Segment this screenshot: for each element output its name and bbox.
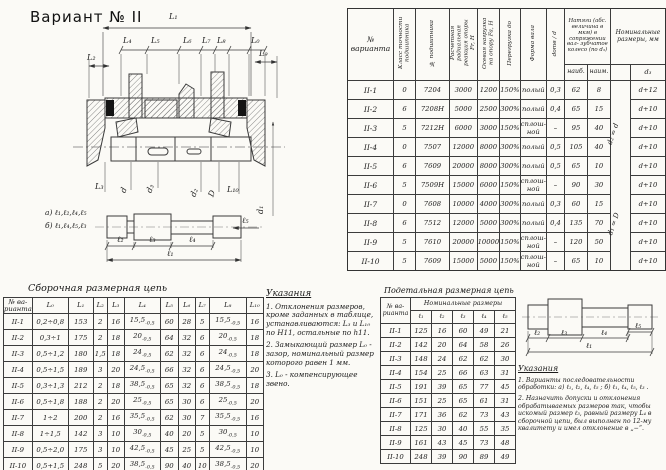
table-cell: 15000 (450, 252, 478, 270)
col-header-accuracy-class-label: Класс точности подшипника (398, 16, 411, 70)
table-cell: 7609 (416, 252, 450, 270)
table-cell: II-3 (4, 346, 33, 362)
table-cell: 300% (500, 100, 520, 119)
table-cell: 18 (107, 346, 124, 362)
table-row: II-90,5÷2,017531042,5-0,54525542,5-0,510 (4, 442, 264, 458)
table-row: II-60,5÷1,818822025-0,56530625-0,520 (4, 394, 264, 410)
table-row: II-9576102000010000150%сплош-ной–12050d+… (348, 233, 665, 252)
col-header-nominal: Номинальные размеры, мм (611, 9, 665, 65)
table-row: II-415425666331 (381, 366, 516, 380)
table-cell (611, 100, 631, 119)
table-cell: 39 (432, 380, 453, 394)
table-cell: 16 (432, 324, 453, 338)
table-cell: II-7 (348, 195, 394, 214)
det-dim-l5: ℓ₅ (635, 322, 641, 330)
table-cell: 6 (394, 157, 416, 176)
table-cell: 5 (195, 314, 209, 330)
dim-label-l2: ℓ₂ (117, 236, 124, 244)
table-cell: 62 (160, 346, 178, 362)
table-cell: сплош-ной (521, 119, 547, 138)
table-cell: 150% (500, 119, 520, 138)
table-cell: d+10 (631, 252, 665, 270)
table-cell: 5 (195, 442, 209, 458)
table-cell: 60 (565, 195, 588, 214)
table-cell: 20 (432, 338, 453, 352)
table-cell: сплош-ной (521, 252, 547, 270)
table-cell: II-6 (381, 394, 411, 408)
table-cell: II-6 (348, 176, 394, 195)
table-cell: 5000 (450, 100, 478, 119)
det-dim-l2: ℓ₂ (534, 329, 540, 337)
asm-col-L8: L₈ (209, 298, 246, 314)
table-cell: 45 (495, 380, 516, 394)
col-header-accuracy-class: Класс точности подшипника (394, 9, 416, 81)
table-cell: II-5 (4, 378, 33, 394)
table-cell: 6 (394, 100, 416, 119)
det-col-l5: ℓ₅ (495, 311, 516, 324)
table-cell: 24,5-0,5 (209, 362, 246, 378)
table-cell: 0,5 (547, 138, 565, 157)
table-cell: 60 (160, 314, 178, 330)
table-cell: 62 (160, 410, 178, 426)
table-cell: 32 (178, 378, 195, 394)
col-header-bearing-no-label: № подшипника (429, 20, 436, 66)
table-row: II-314824626230 (381, 352, 516, 366)
table-cell: II-5 (381, 380, 411, 394)
table-cell: 154 (411, 366, 432, 380)
table-cell: 62 (565, 81, 588, 100)
table-cell: полый (521, 138, 547, 157)
table-cell: 8000 (478, 138, 501, 157)
table-cell: 20000 (450, 157, 478, 176)
table-cell: 5 (394, 119, 416, 138)
table-row: II-615125656131 (381, 394, 516, 408)
table-cell: 125 (411, 324, 432, 338)
table-cell: 1÷1,5 (32, 426, 68, 442)
table-cell (611, 157, 631, 176)
dim-label-l1: ℓ₁ (167, 250, 174, 258)
table-cell: 125 (411, 422, 432, 436)
table-cell: 10000 (478, 233, 501, 252)
table-cell: 30 (588, 176, 611, 195)
col-header-d-ratio: dотв / d (547, 9, 565, 81)
table-cell: 5000 (478, 252, 501, 270)
table-cell: 175 (68, 442, 93, 458)
table-cell: 300% (500, 138, 520, 157)
det-dim-l1: ℓ₁ (586, 342, 592, 350)
table-cell: 6 (195, 330, 209, 346)
table-cell: II-9 (348, 233, 394, 252)
table-cell: 42,5-0,5 (124, 442, 160, 458)
asm-col-L3: L₃ (107, 298, 124, 314)
det-col-l2: ℓ₂ (432, 311, 453, 324)
table-cell: 15000 (450, 176, 478, 195)
table-cell: 0,3÷1,3 (32, 378, 68, 394)
table-row: II-916143457348 (381, 436, 516, 450)
table-cell: 43 (495, 408, 516, 422)
table-cell: 65 (453, 394, 474, 408)
col-header-min: наим. (588, 65, 611, 81)
table-cell: 148 (411, 352, 432, 366)
table-cell: 10 (246, 442, 263, 458)
table-cell: 25-0,5 (124, 394, 160, 410)
table-cell: 25 (178, 442, 195, 458)
table-cell: полый (521, 100, 547, 119)
assembly-chain-body: II-10,2÷0,815321615,5-0,56028515,5-0,516… (4, 314, 264, 470)
table-cell: 65 (565, 100, 588, 119)
table-cell: 31 (495, 394, 516, 408)
table-cell: полый (521, 81, 547, 100)
scanned-variant-sheet: Вариант № II (0, 0, 666, 470)
asm-col-L10: L₁₀ (246, 298, 263, 314)
table-cell: 66 (160, 362, 178, 378)
table-cell: d+10 (631, 233, 665, 252)
table-cell: 7208Н (416, 100, 450, 119)
table-cell: 62 (474, 352, 495, 366)
table-cell: 175 (68, 330, 93, 346)
asm-col-L0: L₀ (32, 298, 68, 314)
table-cell: 30 (495, 352, 516, 366)
table-cell: 73 (474, 436, 495, 450)
table-cell: 1÷2 (32, 410, 68, 426)
table-cell: 39 (432, 450, 453, 464)
table-cell: 49 (495, 450, 516, 464)
col-header-overload-label: Перегрузка до (507, 21, 514, 66)
table-cell: 15 (588, 100, 611, 119)
table-cell: 20000 (450, 233, 478, 252)
table-cell: 20-0,5 (209, 330, 246, 346)
detail-chain-table-wrap: № ва-рианта Номинальные размеры ℓ₁ ℓ₂ ℓ₃… (380, 297, 516, 464)
det-group-header: Номинальные размеры (411, 298, 516, 311)
asm-col-L2: L₂ (93, 298, 107, 314)
table-cell: 24-0,5 (209, 346, 246, 362)
table-cell: 8000 (478, 157, 501, 176)
table-row: II-50,3÷1,321221838,5-0,56532638,5-0,518 (4, 378, 264, 394)
table-cell: 6 (195, 362, 209, 378)
table-row: II-1057609150005000150%сплош-ной–6510d+1… (348, 252, 665, 270)
table-cell: 200 (68, 410, 93, 426)
table-row: II-10,2÷0,815321615,5-0,56028515,5-0,516 (4, 314, 264, 330)
table-cell: 6 (195, 378, 209, 394)
table-cell: 212 (68, 378, 93, 394)
dim-label-L10: L₁₀ (227, 186, 239, 194)
table-cell: 300% (500, 157, 520, 176)
table-cell: 32 (178, 346, 195, 362)
instruction-item: 2. Назначить допуски и отклонения обраба… (518, 395, 664, 432)
table-cell: II-10 (4, 458, 33, 470)
table-row: II-407507120008000300%полый0,510540d+10 (348, 138, 665, 157)
col-header-d3: d₃ (631, 65, 665, 81)
table-cell: 25 (432, 394, 453, 408)
table-cell: 5 (394, 233, 416, 252)
table-cell: 18 (107, 378, 124, 394)
table-cell: II-1 (4, 314, 33, 330)
table-cell: 5 (394, 176, 416, 195)
table-cell: 105 (565, 138, 588, 157)
dim-label-l5: ℓ₅ (242, 217, 249, 225)
table-cell: II-2 (348, 100, 394, 119)
table-cell: 10 (246, 426, 263, 442)
dim-label-L3: L₃ (95, 183, 104, 191)
asm-col-L7: L₇ (195, 298, 209, 314)
instruction-item: 3. L₀ - компенсирующее звено. (266, 371, 376, 388)
instruction-item: 2. Замыкающий размер L₀ - зазор, номинал… (266, 341, 376, 367)
table-cell: сплош-ной (521, 233, 547, 252)
table-cell: 58 (474, 338, 495, 352)
table-cell: 6 (195, 346, 209, 362)
assembly-chain-table-wrap: № ва-рианта L₀ L₁ L₂ L₃ L₄ L₅ L₆ L₇ L₈ L… (3, 297, 264, 470)
table-cell: II-2 (381, 338, 411, 352)
table-cell: II-2 (4, 330, 33, 346)
table-cell: сплош-ной (521, 176, 547, 195)
table-cell: d+10 (631, 138, 665, 157)
dim-label-L1: L₁ (169, 13, 178, 21)
table-cell: 248 (411, 450, 432, 464)
table-cell: 0,5+1,5 (32, 458, 68, 470)
table-cell: 43 (432, 436, 453, 450)
table-cell: 7204 (416, 81, 450, 100)
table-row: II-112516604921 (381, 324, 516, 338)
detail-chain-body: II-112516604921II-214220645826II-3148246… (381, 324, 516, 464)
table-cell: 10 (588, 157, 611, 176)
table-row: II-267208Н50002500300%полый0,46515d+10 (348, 100, 665, 119)
table-cell: 24,5-0,5 (124, 362, 160, 378)
table-cell: 3 (93, 442, 107, 458)
table-cell: 4000 (478, 195, 501, 214)
table-cell: 89 (474, 450, 495, 464)
instructions-right-title: Указания (518, 364, 664, 374)
col-header-max: наиб. (565, 65, 588, 81)
table-cell: 90 (160, 458, 178, 470)
table-cell: – (547, 233, 565, 252)
table-row: II-707608100004000300%полый0,36015d+10 (348, 195, 665, 214)
table-cell: II-10 (348, 252, 394, 270)
table-cell: 10000 (450, 195, 478, 214)
table-cell: 20-0,5 (124, 330, 160, 346)
table-cell: 40 (453, 422, 474, 436)
detail-chain-table: № ва-рианта Номинальные размеры ℓ₁ ℓ₂ ℓ₃… (380, 297, 516, 464)
table-cell: 42,5-0,5 (209, 442, 246, 458)
dim-label-d1: d₁ (257, 206, 265, 214)
table-cell: 30 (178, 394, 195, 410)
col-header-radial-reaction: Расчетная радиальная реакция опоры Fr, Н (450, 9, 478, 81)
table-cell: II-3 (381, 352, 411, 366)
table-cell: 10 (107, 442, 124, 458)
table-cell: 151 (411, 394, 432, 408)
table-cell: 150% (500, 252, 520, 270)
table-cell: 35 (495, 422, 516, 436)
sequence-note-b: б) ℓ₁,ℓ₄,ℓ₅,ℓ₃ (45, 221, 87, 230)
table-row: II-71÷220021635,5-0,56230735,5-0,516 (4, 410, 264, 426)
table-cell: 3000 (450, 81, 478, 100)
asm-col-variant: № ва-рианта (4, 298, 33, 314)
table-cell: 65 (160, 378, 178, 394)
table-cell: 24-0,5 (124, 346, 160, 362)
table-cell: 65 (453, 380, 474, 394)
asm-col-L5: L₅ (160, 298, 178, 314)
table-cell: 32 (178, 330, 195, 346)
table-cell: II-8 (381, 422, 411, 436)
asm-col-L6: L₆ (178, 298, 195, 314)
table-cell: 77 (474, 380, 495, 394)
table-cell: 61 (474, 394, 495, 408)
table-cell: 26 (495, 338, 516, 352)
table-cell: 5000 (478, 214, 501, 233)
table-cell: 7512 (416, 214, 450, 233)
col-header-shaft-form: Форма вала (521, 9, 547, 81)
col-header-axial-load: Осевая нагрузка на опору Fa, Н (478, 9, 501, 81)
instructions-mid: Указания 1. Отклонения размеров, кроме з… (266, 289, 376, 393)
table-cell: 2 (93, 394, 107, 410)
table-cell: 20 (107, 394, 124, 410)
table-cell: 0,3÷1 (32, 330, 68, 346)
table-cell: 0,5÷2,0 (32, 442, 68, 458)
table-cell: 45 (160, 442, 178, 458)
table-cell: 66 (453, 366, 474, 380)
table-cell: 7212Н (416, 119, 450, 138)
col-header-rot-blank (611, 65, 631, 81)
table-cell: 35,5-0,5 (209, 410, 246, 426)
table-cell: 64 (453, 338, 474, 352)
table-row: II-717136627343 (381, 408, 516, 422)
table-cell: 30-0,5 (209, 426, 246, 442)
table-cell: 25 (432, 366, 453, 380)
table-cell: d+10 (631, 119, 665, 138)
table-cell: 0,2÷0,8 (32, 314, 68, 330)
table-cell: 7610 (416, 233, 450, 252)
table-cell: 142 (411, 338, 432, 352)
table-cell: 95 (565, 119, 588, 138)
table-row: II-40,5÷1,518932024,5-0,56632624,5-0,520 (4, 362, 264, 378)
table-cell: 64 (160, 330, 178, 346)
table-row: II-657509Н150006000150%сплош-ной–9030d+1… (348, 176, 665, 195)
table-row: II-214220645826 (381, 338, 516, 352)
table-row: II-81÷1,514231030-0,54020530-0,510 (4, 426, 264, 442)
table-cell: 3 (93, 362, 107, 378)
table-cell: 30 (432, 422, 453, 436)
table-cell: 3000 (478, 119, 501, 138)
detail-shaft-lineart (520, 290, 664, 364)
dim-label-L9: L₉ (259, 50, 268, 58)
dim-label-L8: L₈ (217, 37, 226, 45)
table-cell: 16 (246, 314, 263, 330)
table-cell: 38,5-0,5 (209, 458, 246, 470)
asm-col-L1: L₁ (68, 298, 93, 314)
table-cell: d+10 (631, 157, 665, 176)
table-cell: 49 (474, 324, 495, 338)
table-cell: II-3 (348, 119, 394, 138)
table-cell: d+10 (631, 214, 665, 233)
table-cell: 38,5-0,5 (124, 458, 160, 470)
table-cell: 55 (474, 422, 495, 436)
table-cell: II-9 (381, 436, 411, 450)
table-row: II-100,5+1,524852038,5-0,590401038,5-0,5… (4, 458, 264, 470)
table-cell: 10 (195, 458, 209, 470)
dim-label-L2: L₂ (87, 54, 96, 62)
table-cell: 191 (411, 380, 432, 394)
table-cell: II-4 (4, 362, 33, 378)
col-header-d-ratio-label: dотв / d (552, 31, 559, 56)
table-cell: 248 (68, 458, 93, 470)
table-cell: 38,5-0,5 (124, 378, 160, 394)
table-cell: 40 (160, 426, 178, 442)
dim-label-l4: ℓ₄ (189, 236, 196, 244)
table-cell: – (547, 119, 565, 138)
table-cell (611, 81, 631, 100)
table-cell: 16 (107, 410, 124, 426)
table-cell: II-1 (381, 324, 411, 338)
table-cell: 2 (93, 330, 107, 346)
assembly-drawing: L₁ L₄ L₅ L₆ L₇ L₈ L₀ L₂ L₉ L₃ d d₃ d₂ D … (15, 10, 345, 282)
table-cell: 5 (93, 458, 107, 470)
table-row: II-20,3÷117521820-0,56432620-0,518 (4, 330, 264, 346)
table-cell: 0 (394, 195, 416, 214)
table-cell: 6000 (478, 176, 501, 195)
table-cell: 5 (394, 252, 416, 270)
main-table-wrap: № варианта Класс точности подшипника № п… (347, 8, 666, 271)
table-cell: d+10 (631, 176, 665, 195)
table-cell: II-5 (348, 157, 394, 176)
table-cell: полый (521, 214, 547, 233)
table-cell: 188 (68, 394, 93, 410)
table-cell (611, 176, 631, 195)
table-cell: II-6 (4, 394, 33, 410)
table-cell: II-4 (348, 138, 394, 157)
table-cell: 62 (453, 352, 474, 366)
table-cell: II-1 (348, 81, 394, 100)
dim-label-l3: ℓ₃ (149, 236, 156, 244)
table-cell: 50 (588, 233, 611, 252)
det-dim-l4: ℓ₄ (601, 329, 607, 337)
table-cell: 2 (93, 314, 107, 330)
dim-label-L0: L₀ (251, 37, 260, 45)
table-cell: 300% (500, 214, 520, 233)
table-row: II-1024839908949 (381, 450, 516, 464)
table-cell: 5 (195, 426, 209, 442)
table-cell: 18 (246, 330, 263, 346)
dim-label-L6: L₆ (183, 37, 192, 45)
table-cell: 135 (565, 214, 588, 233)
table-cell: полый (521, 157, 547, 176)
det-col-l3: ℓ₃ (453, 311, 474, 324)
table-cell: 7509Н (416, 176, 450, 195)
col-header-bearing-no: № подшипника (416, 9, 450, 81)
table-cell: 12000 (450, 214, 478, 233)
table-cell: 1,5 (93, 346, 107, 362)
table-cell: 150% (500, 176, 520, 195)
table-cell: 30-0,5 (124, 426, 160, 442)
main-table: № варианта Класс точности подшипника № п… (347, 8, 666, 271)
table-cell: 36 (432, 408, 453, 422)
instructions-right: Указания 1. Варианты последовательности … (518, 364, 664, 437)
table-cell: 15 (588, 195, 611, 214)
col-header-axial-load-label: Осевая нагрузка на опору Fa, Н (482, 16, 495, 70)
table-cell: d+10 (631, 100, 665, 119)
table-cell: 90 (565, 176, 588, 195)
table-cell: 161 (411, 436, 432, 450)
dim-label-L4: L₄ (123, 37, 132, 45)
col-header-interference: Натяги (абс. величина в мкм) в сопряжени… (565, 9, 611, 65)
table-cell: 7609 (416, 157, 450, 176)
main-table-body: II-10720430001200150%полый0,3628d+12II-2… (348, 81, 665, 270)
table-cell: 10 (588, 252, 611, 270)
table-cell: 16 (107, 314, 124, 330)
instruction-item: 1. Отклонения размеров, кроме заданных в… (266, 303, 376, 338)
table-cell: 0,4 (547, 100, 565, 119)
table-cell: 2500 (478, 100, 501, 119)
dim-label-L7: L₇ (202, 37, 211, 45)
detail-shaft-drawing: ℓ₂ ℓ₃ ℓ₄ ℓ₅ ℓ₁ (520, 290, 664, 364)
